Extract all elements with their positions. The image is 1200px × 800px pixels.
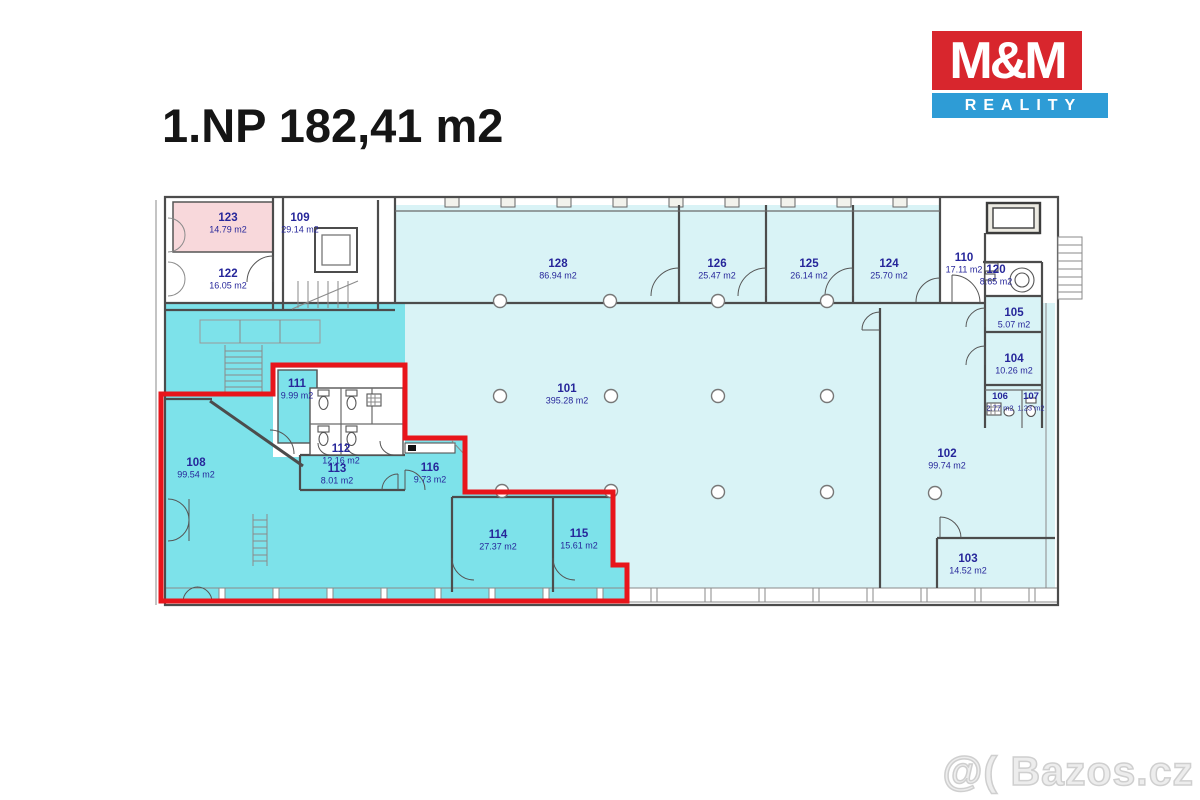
room-area-125: 26.14 m2: [790, 271, 828, 281]
room-area-102: 99.74 m2: [928, 461, 966, 471]
window-mullion: [975, 588, 981, 602]
room-number-102: 102: [937, 448, 956, 460]
room-area-107: 1.23 m2: [1017, 404, 1044, 413]
room-area-105: 5.07 m2: [998, 320, 1031, 330]
room-area-103: 14.52 m2: [949, 566, 987, 576]
facade-pilaster: [613, 197, 627, 207]
structural-column: [821, 390, 834, 403]
external-stairs: [1058, 237, 1082, 299]
structural-column: [494, 390, 507, 403]
room-area-120: 8.65 m2: [980, 277, 1013, 287]
room-number-110: 110: [955, 252, 974, 264]
window-mullion: [813, 588, 819, 602]
room-area-108: 99.54 m2: [177, 470, 215, 480]
room-number-114: 114: [489, 529, 508, 541]
room-number-124: 124: [879, 258, 899, 270]
room-116-kitchenette: [405, 441, 464, 454]
room-number-112: 112: [332, 443, 351, 455]
structural-column: [821, 486, 834, 499]
facade-pilaster: [725, 197, 739, 207]
room-number-122: 122: [218, 268, 237, 280]
room-number-115: 115: [570, 528, 589, 540]
facade-pilaster: [781, 197, 795, 207]
room-number-128: 128: [548, 258, 568, 270]
window-mullion: [759, 588, 765, 602]
room-area-115: 15.61 m2: [560, 541, 598, 551]
structural-column: [605, 390, 618, 403]
room-area-123: 14.79 m2: [209, 225, 247, 235]
window-mullion: [867, 588, 873, 602]
room-area-114: 27.37 m2: [479, 542, 517, 552]
room-number-103: 103: [958, 553, 977, 565]
structural-column: [821, 295, 834, 308]
structural-column: [604, 295, 617, 308]
room-number-107: 107: [1023, 391, 1039, 402]
structural-column: [712, 295, 725, 308]
room-area-128: 86.94 m2: [539, 271, 577, 281]
room-area-106: 2.77 m2: [986, 404, 1013, 413]
room-area-101: 395.28 m2: [546, 396, 589, 406]
room-area-104: 10.26 m2: [995, 366, 1033, 376]
top-band-rooms-fill: [395, 205, 940, 303]
room-number-113: 113: [328, 463, 347, 475]
room-number-123: 123: [218, 212, 237, 224]
room-number-105: 105: [1004, 307, 1024, 319]
facade-pilaster: [837, 197, 851, 207]
room-number-126: 126: [707, 258, 726, 270]
facade-pilaster: [669, 197, 683, 207]
elevator-car: [322, 235, 350, 265]
window-mullion: [651, 588, 657, 602]
facade-pilaster: [445, 197, 459, 207]
room-number-101: 101: [557, 383, 577, 395]
room-area-122: 16.05 m2: [209, 281, 247, 291]
room-area-109: 29.14 m2: [281, 225, 319, 235]
sink-grid-icon: [367, 394, 381, 406]
room-number-116: 116: [421, 462, 440, 474]
facade-pilaster: [893, 197, 907, 207]
room-area-111: 9.99 m2: [281, 391, 314, 401]
room-number-108: 108: [186, 457, 206, 469]
kitchenette-sink: [408, 445, 416, 451]
room-area-110: 17.11 m2: [946, 265, 983, 275]
facade-pilaster: [501, 197, 515, 207]
bazos-watermark: @( Bazos.cz: [943, 748, 1194, 795]
structural-column: [494, 295, 507, 308]
floor-plan: 101395.28 m210299.74 m210314.52 m210410.…: [0, 0, 1200, 800]
room-number-111: 111: [288, 378, 307, 390]
floor-plan-page: 1.NP 182,41 m2 M&M REALITY: [0, 0, 1200, 800]
structural-column: [712, 390, 725, 403]
room-number-109: 109: [290, 212, 309, 224]
structural-column: [712, 486, 725, 499]
room-area-113: 8.01 m2: [321, 476, 354, 486]
room-number-106: 106: [992, 391, 1008, 402]
window-mullion: [705, 588, 711, 602]
window-mullion: [1029, 588, 1035, 602]
facade-pilaster: [557, 197, 571, 207]
room-area-124: 25.70 m2: [870, 271, 908, 281]
loading-ramp: [987, 203, 1040, 233]
room-area-116: 9.73 m2: [414, 475, 447, 485]
room-number-125: 125: [799, 258, 819, 270]
room-number-120: 120: [986, 264, 1005, 276]
room-area-126: 25.47 m2: [698, 271, 736, 281]
room-number-104: 104: [1004, 353, 1024, 365]
structural-column: [929, 487, 942, 500]
window-mullion: [921, 588, 927, 602]
